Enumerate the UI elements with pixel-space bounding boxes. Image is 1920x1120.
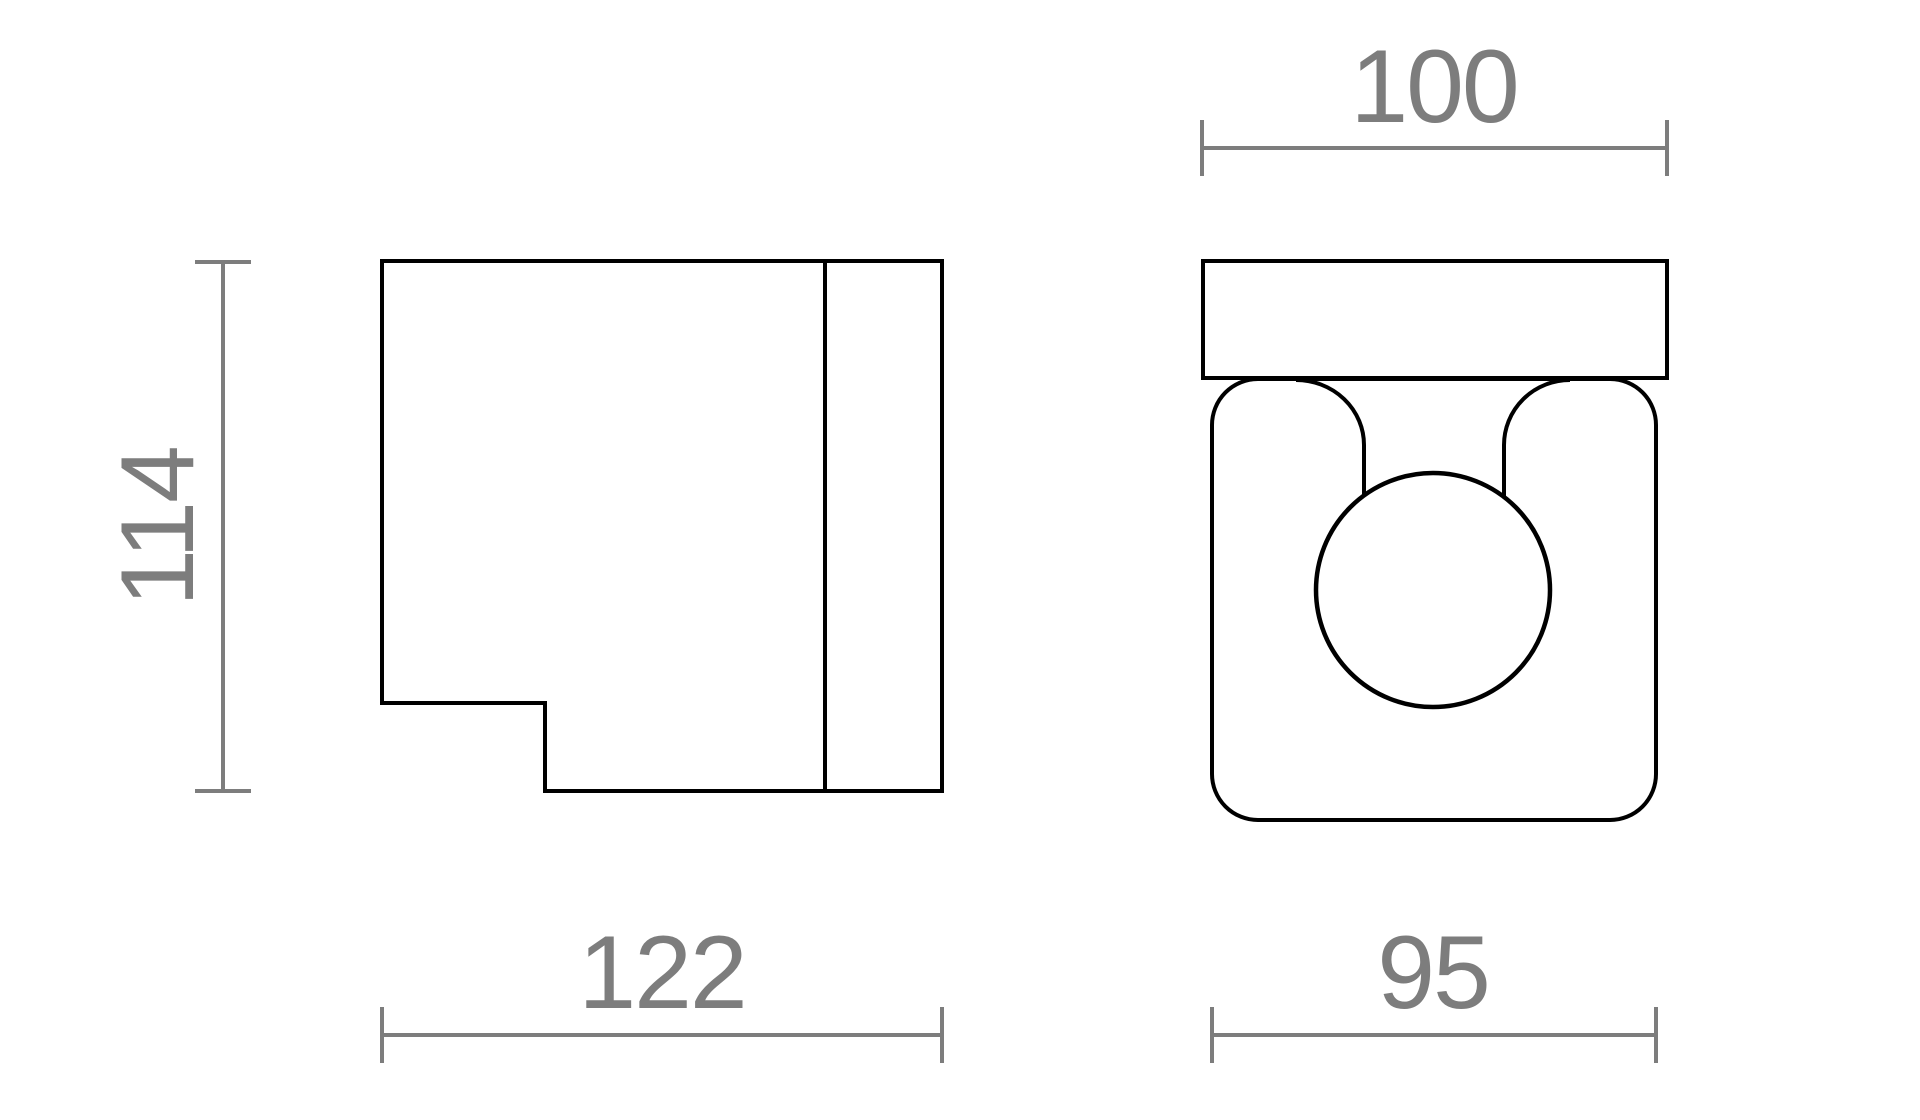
dimension-front-plate-width: 100 bbox=[1202, 29, 1667, 176]
dimension-label: 95 bbox=[1377, 915, 1489, 1031]
dimension-side-height: 114 bbox=[100, 262, 251, 791]
front-view bbox=[1203, 261, 1667, 820]
dimension-label: 100 bbox=[1350, 29, 1517, 145]
dimension-front-body-width: 95 bbox=[1212, 915, 1656, 1063]
side-view bbox=[382, 261, 942, 791]
dimension-label: 114 bbox=[100, 447, 216, 607]
side-view-outline bbox=[382, 261, 942, 791]
front-view-left-arm bbox=[1296, 380, 1364, 496]
dimension-side-width: 122 bbox=[382, 915, 942, 1063]
front-view-mount-plate bbox=[1203, 261, 1667, 378]
dimension-drawing: 11412210095 bbox=[0, 0, 1920, 1120]
technical-drawing-canvas: 11412210095 bbox=[0, 0, 1920, 1120]
front-view-right-arm bbox=[1504, 380, 1570, 496]
front-view-sphere bbox=[1316, 473, 1550, 707]
dimension-label: 122 bbox=[578, 915, 745, 1031]
